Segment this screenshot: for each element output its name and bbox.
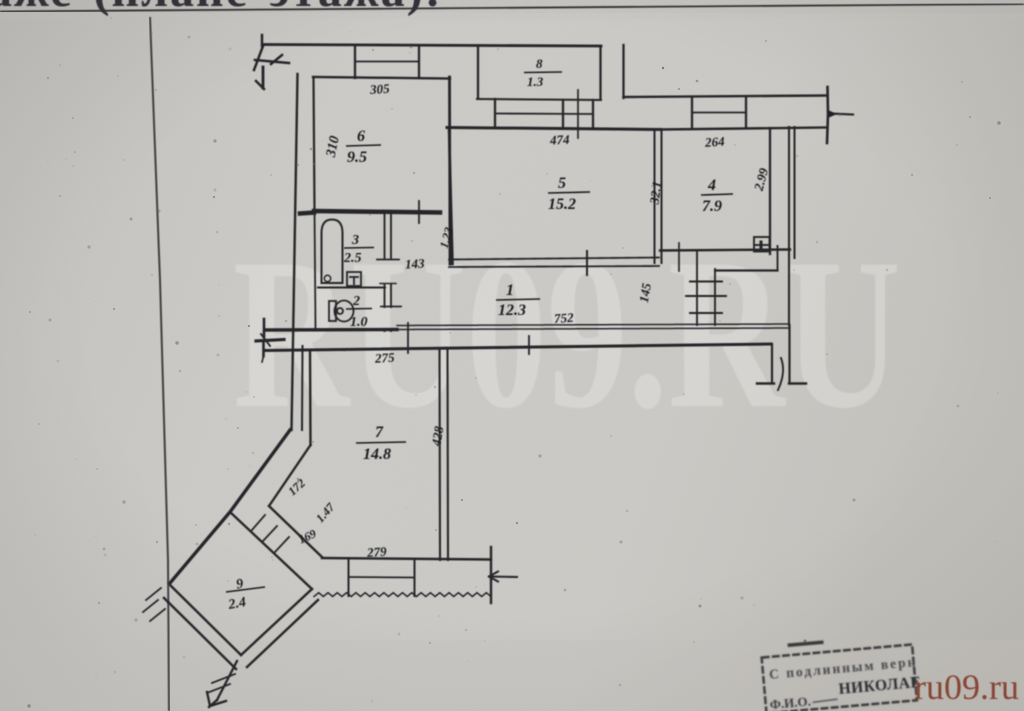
- svg-text:275: 275: [374, 350, 396, 366]
- svg-text:143: 143: [405, 256, 426, 272]
- svg-text:2.4: 2.4: [226, 595, 247, 613]
- svg-text:14.8: 14.8: [363, 446, 391, 463]
- svg-text:2: 2: [352, 294, 360, 309]
- svg-text:6: 6: [357, 128, 365, 145]
- svg-text:1: 1: [506, 282, 514, 299]
- svg-text:1.3: 1.3: [527, 74, 544, 89]
- svg-text:7.9: 7.9: [702, 198, 722, 215]
- svg-text:2.5: 2.5: [343, 251, 362, 266]
- svg-text:RU09.RU: RU09.RU: [233, 214, 901, 453]
- svg-text:474: 474: [549, 132, 571, 148]
- svg-text:4: 4: [707, 177, 716, 194]
- svg-text:305: 305: [369, 81, 391, 97]
- svg-text:264: 264: [704, 134, 726, 150]
- svg-text:752: 752: [554, 310, 575, 326]
- svg-text:12.3: 12.3: [498, 302, 526, 319]
- svg-text:5: 5: [558, 175, 566, 192]
- svg-text:279: 279: [366, 544, 388, 560]
- svg-text:1.0: 1.0: [350, 315, 368, 330]
- svg-text:15.2: 15.2: [548, 196, 576, 213]
- svg-text:7: 7: [375, 424, 384, 441]
- svg-text:ru09.ru: ru09.ru: [914, 667, 1019, 707]
- svg-text:Ф.И.О.: Ф.И.О.: [769, 694, 811, 711]
- svg-text:8: 8: [536, 56, 543, 71]
- svg-text:3: 3: [351, 233, 359, 248]
- svg-text:9.5: 9.5: [347, 149, 367, 166]
